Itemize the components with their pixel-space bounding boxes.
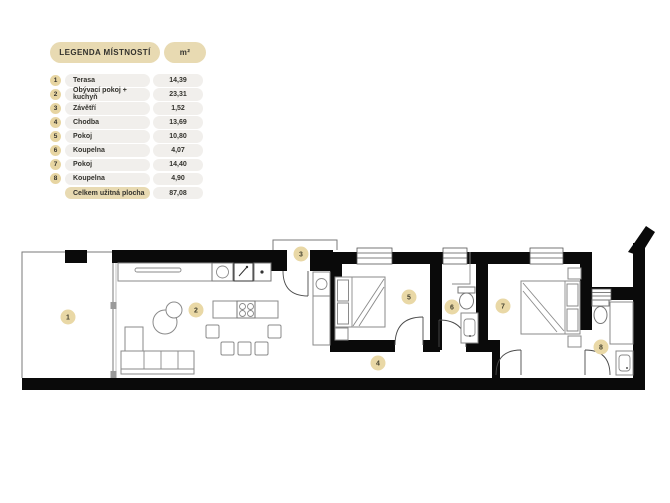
- nightstand: [568, 268, 581, 279]
- bathroom8-fixtures: [592, 300, 633, 375]
- badge-room-4: 4: [371, 356, 386, 371]
- svg-text:7: 7: [501, 304, 505, 311]
- floor-plan: 1 2 3 4 5 6 7 8: [0, 0, 670, 503]
- badge-room-7: 7: [496, 299, 511, 314]
- nightstand: [335, 328, 348, 340]
- coffee-table: [153, 302, 182, 334]
- bathroom-counter: [610, 302, 633, 344]
- entry-cabinet: [313, 272, 330, 345]
- svg-text:3: 3: [299, 252, 303, 259]
- badge-room-2: 2: [189, 303, 204, 318]
- svg-text:4: 4: [376, 361, 380, 368]
- svg-text:8: 8: [599, 345, 603, 352]
- kitchen-island: [206, 301, 281, 355]
- badge-room-6: 6: [445, 300, 460, 315]
- svg-text:6: 6: [450, 305, 454, 312]
- svg-text:2: 2: [194, 308, 198, 315]
- badge-room-5: 5: [402, 290, 417, 305]
- bed-room5: [335, 277, 385, 340]
- bathroom6-fixtures: [452, 252, 478, 343]
- kitchen-counter: [118, 263, 271, 281]
- svg-text:1: 1: [66, 315, 70, 322]
- badge-room-3: 3: [294, 247, 309, 262]
- badge-room-8: 8: [594, 340, 609, 355]
- toilet-icon: [594, 307, 607, 324]
- badge-room-1: 1: [61, 310, 76, 325]
- toilet-icon: [460, 293, 474, 309]
- bed-room7: [521, 268, 581, 347]
- svg-text:5: 5: [407, 295, 411, 302]
- sofa: [121, 327, 194, 374]
- nightstand: [568, 336, 581, 347]
